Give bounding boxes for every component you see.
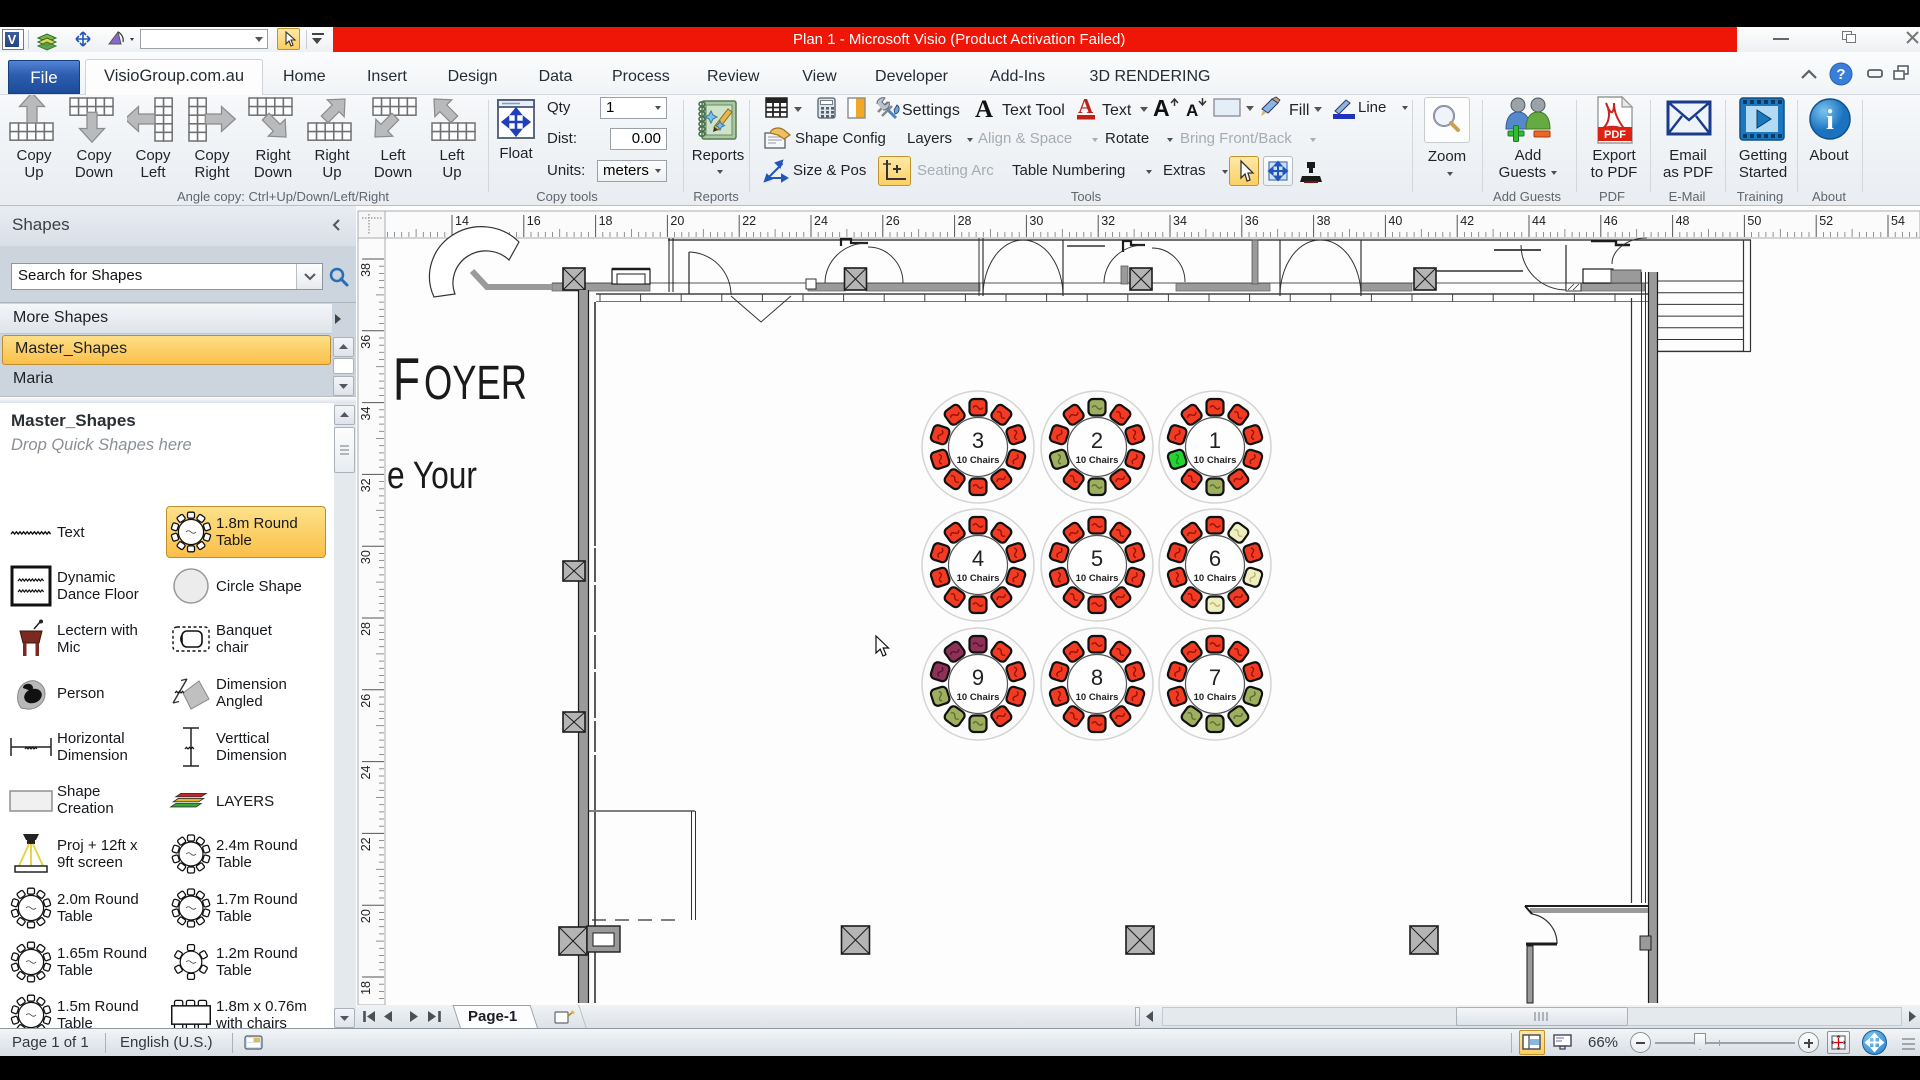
- svg-text:34: 34: [1173, 214, 1187, 228]
- svg-text:A: A: [1153, 96, 1170, 121]
- svg-text:18: 18: [599, 214, 613, 228]
- svg-text:44: 44: [1532, 214, 1546, 228]
- svg-text:2: 2: [1091, 428, 1103, 453]
- svg-text:10 Chairs: 10 Chairs: [1076, 692, 1119, 703]
- svg-text:3: 3: [972, 428, 984, 453]
- svg-text:6: 6: [1209, 546, 1221, 571]
- svg-text:8: 8: [1091, 665, 1103, 690]
- svg-text:A: A: [1078, 96, 1094, 118]
- svg-text:22: 22: [742, 214, 756, 228]
- svg-text:48: 48: [1676, 214, 1690, 228]
- svg-text:28: 28: [958, 214, 972, 228]
- svg-text:40: 40: [1388, 214, 1402, 228]
- svg-text:10 Chairs: 10 Chairs: [957, 455, 1000, 466]
- svg-text:i: i: [1826, 105, 1834, 136]
- svg-text:20: 20: [670, 214, 684, 228]
- svg-text:10 Chairs: 10 Chairs: [1076, 573, 1119, 584]
- svg-text:OYER: OYER: [424, 357, 527, 410]
- svg-text:16: 16: [527, 214, 541, 228]
- svg-text:10 Chairs: 10 Chairs: [1194, 573, 1237, 584]
- svg-text:?: ?: [1836, 66, 1845, 83]
- svg-text:30: 30: [359, 550, 373, 564]
- svg-text:26: 26: [886, 214, 900, 228]
- svg-text:34: 34: [359, 407, 373, 421]
- svg-text:14: 14: [455, 214, 469, 228]
- svg-text:54: 54: [1891, 214, 1905, 228]
- svg-text:e Your: e Your: [387, 455, 477, 497]
- svg-text:38: 38: [1317, 214, 1331, 228]
- svg-text:24: 24: [814, 214, 828, 228]
- svg-text:50: 50: [1747, 214, 1761, 228]
- svg-text:A: A: [1186, 101, 1198, 120]
- svg-text:Settings: Settings: [902, 102, 960, 119]
- svg-text:1: 1: [1209, 428, 1221, 453]
- svg-text:28: 28: [359, 622, 373, 636]
- svg-text:30: 30: [1029, 214, 1043, 228]
- svg-text:52: 52: [1819, 214, 1833, 228]
- svg-text:36: 36: [1245, 214, 1259, 228]
- svg-text:7: 7: [1209, 665, 1221, 690]
- svg-text:4: 4: [972, 546, 984, 571]
- svg-text:36: 36: [359, 335, 373, 349]
- svg-text:10 Chairs: 10 Chairs: [957, 573, 1000, 584]
- svg-text:20: 20: [359, 909, 373, 923]
- svg-text:PDF: PDF: [1604, 129, 1626, 141]
- svg-text:32: 32: [359, 478, 373, 492]
- svg-text:9: 9: [972, 665, 984, 690]
- svg-text:10 Chairs: 10 Chairs: [1194, 455, 1237, 466]
- svg-text:5: 5: [1091, 546, 1103, 571]
- svg-text:26: 26: [359, 694, 373, 708]
- svg-text:24: 24: [359, 766, 373, 780]
- svg-text:Text Tool: Text Tool: [1002, 102, 1065, 119]
- svg-text:Fill: Fill: [1289, 102, 1309, 119]
- svg-text:F: F: [393, 346, 420, 413]
- svg-text:38: 38: [359, 263, 373, 277]
- svg-text:22: 22: [359, 837, 373, 851]
- svg-text:10 Chairs: 10 Chairs: [1076, 455, 1119, 466]
- svg-text:32: 32: [1101, 214, 1115, 228]
- svg-text:A: A: [975, 96, 993, 122]
- svg-text:18: 18: [359, 981, 373, 995]
- svg-text:46: 46: [1604, 214, 1618, 228]
- svg-text:10 Chairs: 10 Chairs: [957, 692, 1000, 703]
- svg-text:42: 42: [1460, 214, 1474, 228]
- svg-text:10 Chairs: 10 Chairs: [1194, 692, 1237, 703]
- svg-text:Text: Text: [1102, 102, 1132, 119]
